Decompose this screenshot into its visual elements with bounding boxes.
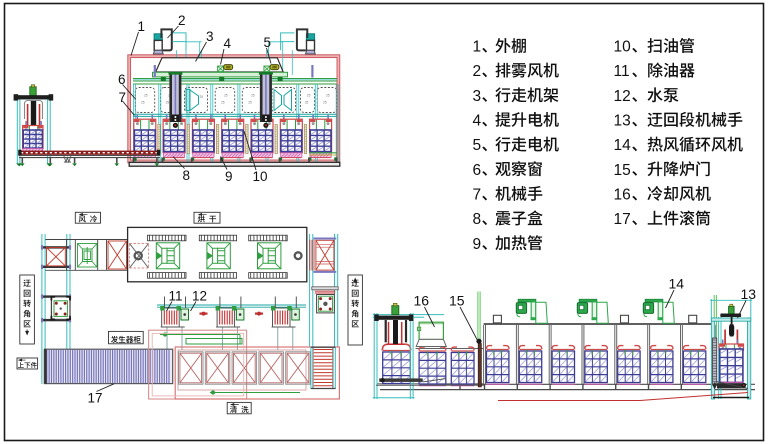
svg-text:25: 25: [224, 94, 228, 98]
svg-text:15: 15: [614, 162, 631, 179]
svg-text:15: 15: [449, 293, 465, 309]
svg-text:3: 3: [473, 88, 482, 105]
svg-text:7: 7: [473, 187, 482, 204]
svg-text:10: 10: [614, 39, 632, 56]
svg-text:6: 6: [473, 162, 482, 179]
svg-text:25: 25: [141, 101, 145, 105]
svg-text:14: 14: [614, 137, 632, 154]
svg-text:2: 2: [473, 63, 482, 80]
svg-text:7: 7: [119, 90, 127, 105]
svg-text:25: 25: [326, 94, 330, 98]
svg-text:25: 25: [200, 95, 204, 99]
svg-text:8: 8: [183, 168, 191, 183]
svg-text:11: 11: [614, 63, 630, 80]
svg-text:25: 25: [251, 94, 255, 98]
svg-text:25: 25: [307, 94, 311, 98]
svg-text:25: 25: [221, 101, 225, 105]
svg-text:17: 17: [614, 211, 631, 228]
svg-text:25: 25: [305, 101, 309, 105]
svg-text:16: 16: [614, 187, 631, 204]
svg-text:13: 13: [614, 113, 631, 130]
svg-text:5: 5: [264, 35, 272, 50]
svg-text:17: 17: [88, 391, 103, 406]
svg-text:8: 8: [473, 211, 482, 228]
svg-text:4: 4: [473, 113, 482, 130]
svg-text:1: 1: [473, 39, 482, 56]
svg-text:10: 10: [253, 169, 268, 184]
svg-text:13: 13: [741, 286, 757, 302]
svg-text:25: 25: [144, 94, 148, 98]
svg-text:4: 4: [224, 36, 232, 51]
svg-text:25: 25: [248, 101, 252, 105]
svg-text:11: 11: [169, 289, 183, 304]
svg-text:9: 9: [225, 169, 233, 184]
svg-text:5: 5: [473, 137, 482, 154]
svg-text:9: 9: [473, 236, 482, 253]
svg-text:12: 12: [192, 289, 207, 304]
svg-text:14: 14: [669, 276, 685, 292]
svg-text:25: 25: [166, 101, 170, 105]
svg-text:3: 3: [206, 29, 214, 44]
svg-text:25: 25: [323, 101, 327, 105]
svg-text:2: 2: [178, 13, 186, 28]
svg-text:16: 16: [414, 293, 430, 309]
svg-text:6: 6: [118, 72, 126, 87]
svg-text:12: 12: [614, 88, 631, 105]
svg-text:1: 1: [138, 19, 146, 34]
